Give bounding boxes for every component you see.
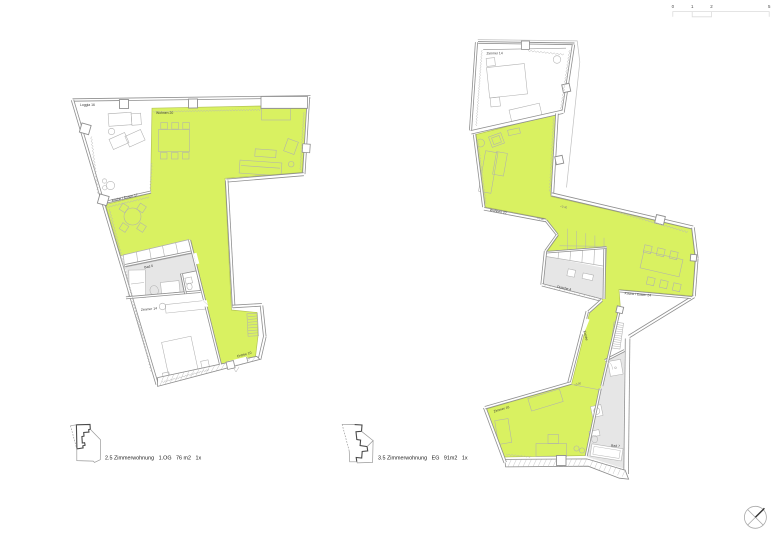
svg-text:2: 2 xyxy=(710,4,713,9)
svg-text:1: 1 xyxy=(691,4,694,9)
svg-text:Zimmer 14: Zimmer 14 xyxy=(141,306,158,312)
svg-text:2.5 Zimmerwohnung 1.OG 76: 2.5 Zimmerwohnung 1.OG 76 m2 1x xyxy=(105,455,201,461)
svg-text:Zimmer 14: Zimmer 14 xyxy=(486,51,502,55)
svg-text:Wohnen 20: Wohnen 20 xyxy=(156,111,173,115)
svg-text:5: 5 xyxy=(768,4,771,9)
svg-text:Loggia 16: Loggia 16 xyxy=(80,103,95,107)
svg-text:3.5 Zimmerwohnung EG 91m2: 3.5 Zimmerwohnung EG 91m2 1x xyxy=(378,455,468,461)
svg-text:Bad 7: Bad 7 xyxy=(611,444,620,449)
svg-text:0: 0 xyxy=(672,4,675,9)
